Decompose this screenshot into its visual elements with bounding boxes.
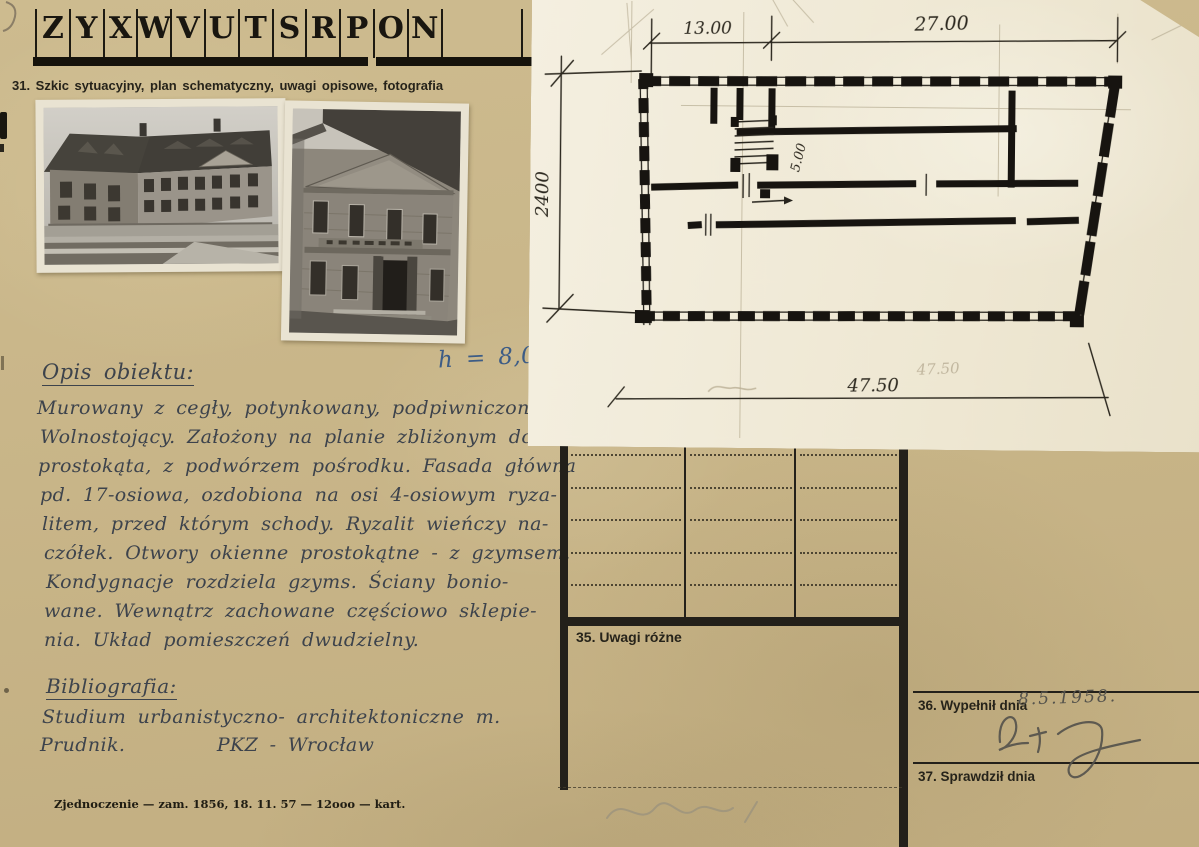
signature [980, 702, 1155, 782]
letter: N [411, 2, 438, 56]
letter: V [176, 2, 199, 56]
dim-stairs: 5.00 [788, 142, 810, 174]
opis-heading: Opis obiektu: [42, 360, 194, 386]
photo2-image [289, 109, 461, 336]
dimension-lines [542, 12, 1126, 416]
letter-cell: W [137, 2, 171, 58]
floor-plan-sketch: 13.00 27.00 2400 47.50 5.00 47.50 [528, 0, 1199, 453]
dotted-row [800, 584, 897, 586]
opis-line: czółek. Otwory okienne prostokątne - z g… [44, 542, 571, 564]
table-bottom-rule [560, 617, 908, 626]
plan-corners [635, 71, 1122, 328]
pencil-mark-corner [0, 0, 40, 40]
letter: X [109, 2, 132, 56]
dim-top-left: 13.00 [683, 18, 732, 38]
dotted-row [571, 584, 681, 586]
opis-line: prostokąta, z podwórzem pośrodku. Fasada… [38, 455, 576, 477]
dotted-row [690, 454, 792, 456]
table-dashed-bottom [558, 787, 902, 788]
opis-line: litem, przed którym schody. Ryzalit wień… [42, 513, 549, 535]
foreground-shapes [44, 224, 278, 265]
entrance-arrow [752, 196, 793, 204]
bibliografia-line: Prudnik. PKZ - Wrocław [40, 734, 374, 756]
section-35-label: 35. Uwagi różne [576, 629, 682, 645]
letter: Z [42, 2, 64, 56]
letter: U [209, 2, 235, 56]
strip-rule [33, 57, 368, 66]
letter-cell: U [205, 2, 239, 58]
height-note: h = 8,0 [437, 342, 536, 373]
opis-line: Murowany z cegły, potynkowany, podpiwnic… [37, 397, 545, 419]
letter-cell: N [408, 2, 442, 58]
floor-plan-sheet: 13.00 27.00 2400 47.50 5.00 47.50 [528, 0, 1199, 453]
edge-dot-mark [4, 688, 9, 693]
opis-line: Wolnostojący. Założony na planie zbliżon… [40, 426, 533, 448]
dotted-row [571, 454, 681, 456]
dotted-row [800, 552, 897, 554]
dim-bottom-pencil-ghost: 47.50 [915, 359, 960, 379]
plan-wall-underlays [638, 73, 1117, 330]
pencil-scribble [595, 790, 805, 840]
dotted-row [571, 519, 681, 521]
letter: P [346, 2, 369, 56]
pencil-ghost-scribble [708, 387, 756, 393]
edge-ink-mark [0, 144, 4, 152]
dotted-row [690, 552, 792, 554]
dotted-row [690, 584, 792, 586]
table-column-rule [684, 443, 686, 619]
imprint: Zjednoczenie — zam. 1856, 18. 11. 57 — 1… [54, 797, 405, 811]
photo-building-general-view [35, 98, 286, 273]
bibliografia-heading: Bibliografia: [46, 674, 177, 700]
edge-ink-mark [0, 112, 7, 139]
letter: R [311, 2, 336, 56]
letter-cell: P [340, 2, 374, 58]
letter-cell: O [374, 2, 408, 58]
dotted-row [800, 487, 897, 489]
bibliografia-line: Studium urbanistyczno- architektoniczne … [42, 706, 501, 728]
letter-cell-empty [442, 2, 522, 58]
dotted-row [800, 454, 897, 456]
letter: O [378, 2, 404, 56]
letter-cell: Y [70, 2, 104, 58]
photo1-image [43, 106, 278, 265]
opis-line: nia. Układ pomieszczeń dwudzielny. [44, 629, 419, 651]
edge-pencil-mark [1, 356, 4, 370]
letter-cell: X [104, 2, 138, 58]
dim-top-right: 27.00 [913, 12, 969, 35]
letter-cell: Z [36, 2, 70, 58]
letter: T [245, 2, 267, 56]
section-31-label: 31. Szkic sytuacyjny, plan schematyczny,… [12, 78, 443, 93]
letter: S [279, 2, 301, 56]
letter-cell: V [171, 2, 205, 58]
dimension-labels: 13.00 27.00 2400 47.50 5.00 47.50 [530, 8, 969, 398]
dim-bottom: 47.50 [846, 375, 899, 396]
dim-left: 2400 [532, 171, 553, 218]
photo-facade-entrance [281, 100, 469, 343]
letter-cell: R [306, 2, 340, 58]
opis-line: pd. 17-osiowa, ozdobiona na osi 4-osiowy… [40, 484, 557, 506]
letter-index-strip: Z Y X W V U T S R P O N [36, 2, 562, 60]
letter-cell: T [239, 2, 273, 58]
table-column-rule [794, 443, 796, 619]
letter: W [137, 2, 171, 56]
archive-card: Z Y X W V U T S R P O N 31. Szkic sytuac… [0, 0, 1199, 847]
dotted-row [571, 487, 681, 489]
opis-line: wane. Wewnątrz zachowane częściowo sklep… [44, 600, 537, 622]
opis-line: Kondygnacje rozdziela gzyms. Ściany boni… [46, 571, 509, 593]
letter: Y [76, 2, 97, 56]
dotted-row [690, 487, 792, 489]
letter-cell: S [273, 2, 307, 58]
dotted-row [571, 552, 681, 554]
dotted-row [690, 519, 792, 521]
dotted-row [800, 519, 897, 521]
